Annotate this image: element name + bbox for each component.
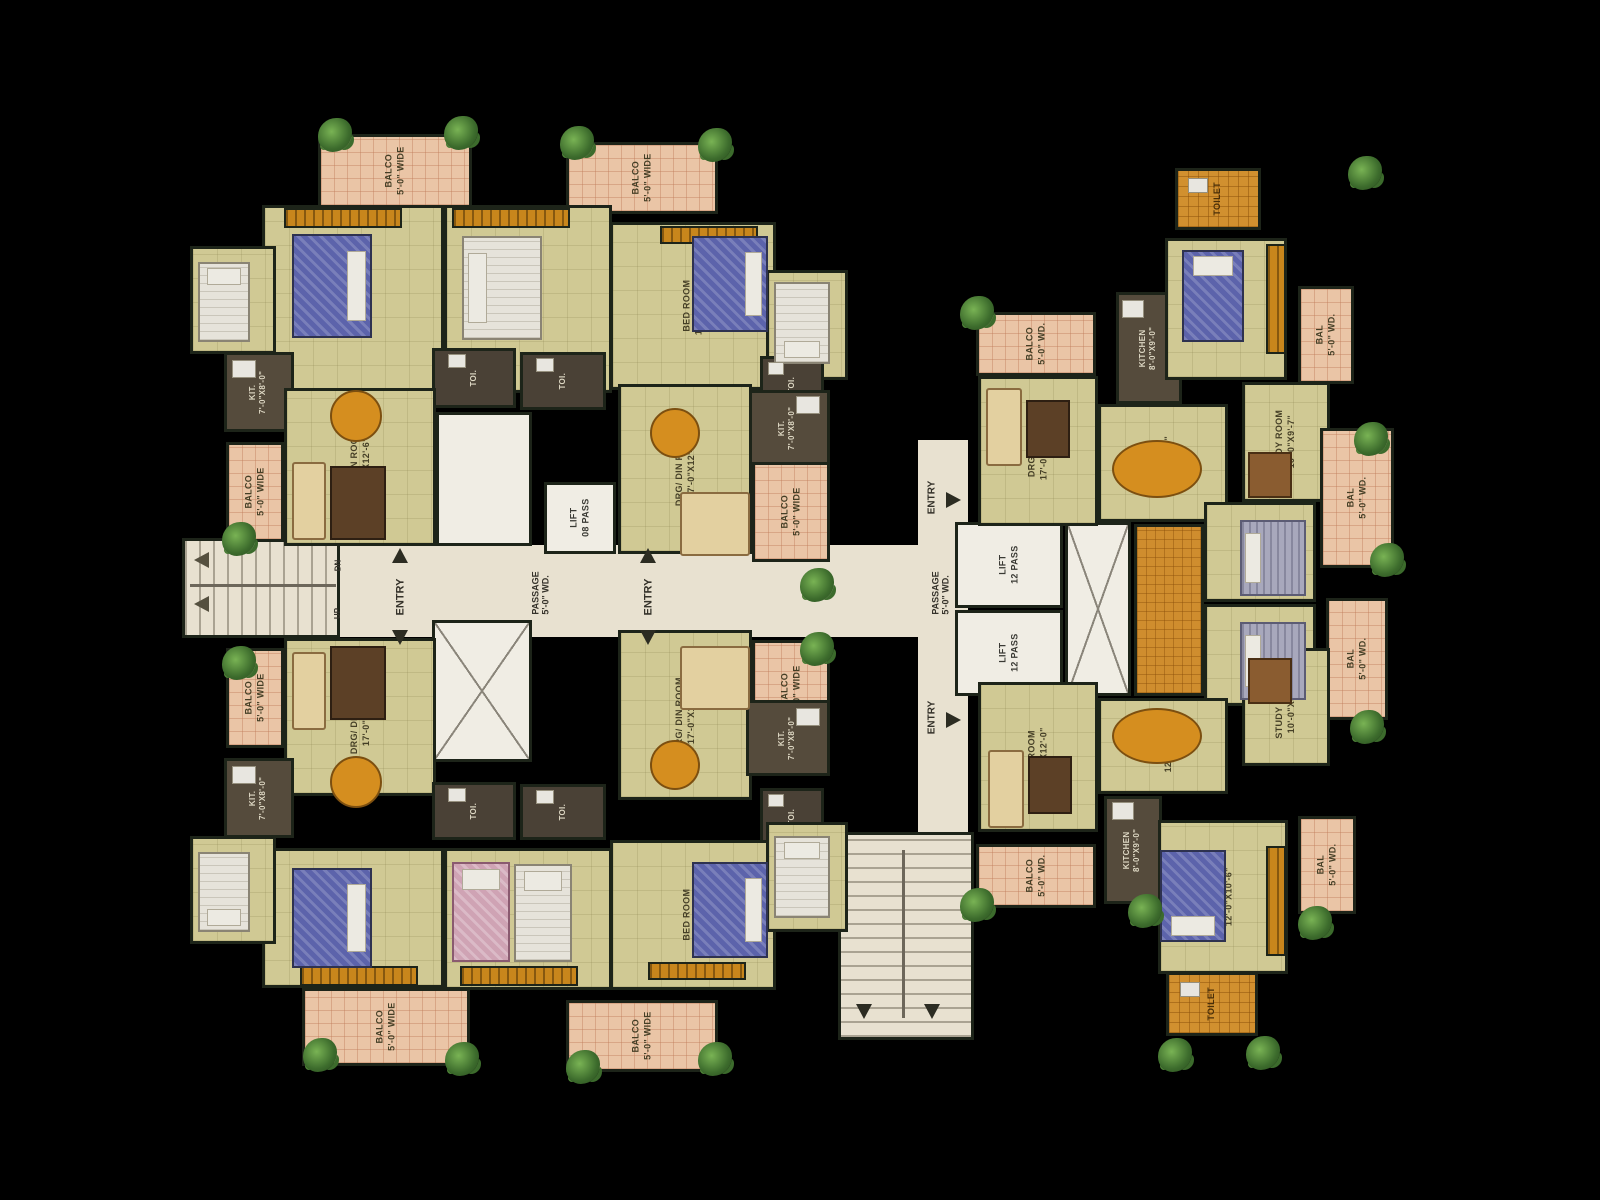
sofa-17 — [292, 652, 326, 730]
room-bal-b-bottomright: BAL 5'-0" WD. — [1298, 816, 1356, 914]
plant-icon — [1370, 543, 1404, 577]
tv-16 — [330, 466, 386, 540]
wardrobe-strip-0 — [284, 208, 402, 228]
bed-pillow — [1245, 533, 1261, 583]
bed-pillow — [1171, 916, 1214, 936]
wardrobe-strip-3 — [300, 966, 418, 986]
plant-icon — [698, 1042, 732, 1076]
fixture-43 — [768, 362, 784, 375]
room-label-toilet-center-4: TOI. — [523, 787, 603, 837]
bed-blue-5 — [292, 868, 372, 968]
bed-pink-6 — [452, 862, 510, 962]
room-lift-b1: LIFT 12 PASS — [955, 522, 1063, 608]
bed-white-7 — [514, 864, 572, 962]
room-label-bal-b-bottomright: BAL 5'-0" WD. — [1301, 819, 1353, 911]
floor-plan-canvas: LIFT 08 PASSLIFT 12 PASSLIFT 12 PASSBALC… — [0, 0, 1600, 1200]
wardrobe-strip-7 — [1266, 846, 1286, 956]
direction-arrow-up-icon — [392, 548, 408, 563]
wardrobe-strip-5 — [648, 962, 746, 980]
plant-icon — [1350, 710, 1384, 744]
stair-rail-1 — [902, 850, 905, 1018]
direction-arrow-right-icon — [946, 492, 961, 508]
room-balco-b-bottomleft: BALCO 5'-0" WD. — [976, 844, 1096, 908]
bed-blue-8 — [692, 862, 768, 958]
fixture-39 — [448, 354, 466, 368]
bed-blue-2 — [692, 236, 768, 332]
direction-arrow-right-icon — [946, 712, 961, 728]
room-label-balco-tr-top: BALCO 5'-0" WIDE — [569, 145, 715, 211]
desk-31 — [1248, 452, 1292, 498]
table-round-28 — [650, 740, 700, 790]
bed-white-10 — [774, 836, 830, 918]
bed-pillow — [1193, 256, 1234, 276]
fixture-41 — [448, 788, 466, 802]
room-shaft-core-b — [1065, 522, 1131, 696]
plant-icon — [1348, 156, 1382, 190]
room-shaft-core-a — [432, 620, 532, 762]
bed-pillow — [347, 251, 366, 321]
plant-icon — [566, 1050, 600, 1084]
fixture-46 — [1180, 982, 1200, 997]
plant-icon — [960, 888, 994, 922]
plant-icon — [1298, 906, 1332, 940]
bed-pillow — [468, 253, 487, 323]
table-oval-29 — [1112, 440, 1202, 498]
fixture-38 — [1112, 802, 1134, 820]
tv-22 — [1026, 400, 1070, 458]
room-hall-core-a — [436, 412, 532, 546]
bed-white-1 — [462, 236, 542, 340]
room-balco-b-topleft: BALCO 5'-0" WD. — [976, 312, 1096, 376]
plant-icon — [303, 1038, 337, 1072]
sofa-21 — [986, 388, 1022, 466]
room-lift-a: LIFT 08 PASS — [544, 482, 616, 554]
direction-arrow-down-icon — [856, 1004, 872, 1019]
fixture-42 — [536, 790, 554, 804]
room-balco-right-top: BALCO 5'-0" WIDE — [752, 462, 830, 562]
fixture-34 — [232, 766, 256, 784]
table-round-25 — [330, 390, 382, 442]
room-toilet-center-1: TOI. — [432, 348, 516, 408]
wardrobe-strip-1 — [452, 208, 570, 228]
room-toilet-center-2: TOI. — [520, 352, 606, 410]
room-label-lift-a: LIFT 08 PASS — [547, 485, 613, 551]
table-round-27 — [330, 756, 382, 808]
plant-icon — [1128, 894, 1162, 928]
sofa-15 — [292, 462, 326, 540]
room-label-toilet-center-3: TOI. — [435, 785, 513, 837]
bed-pillow — [784, 842, 820, 860]
room-label-balco-b-bottomleft: BALCO 5'-0" WD. — [979, 847, 1093, 905]
room-label-balco-right-top: BALCO 5'-0" WIDE — [755, 465, 827, 559]
direction-arrow-left-icon — [194, 596, 209, 612]
bed-pillow — [745, 252, 763, 316]
wardrobe-strip-6 — [1266, 244, 1286, 354]
room-label-lift-b1: LIFT 12 PASS — [958, 525, 1060, 605]
plant-icon — [1246, 1036, 1280, 1070]
room-label-toilet-center-1: TOI. — [435, 351, 513, 405]
desk-32 — [1248, 658, 1292, 704]
tv-24 — [1028, 756, 1072, 814]
sofa-19 — [680, 492, 750, 556]
fixture-45 — [1188, 178, 1208, 193]
sofa-20 — [680, 646, 750, 710]
table-round-26 — [650, 408, 700, 458]
plant-icon — [445, 1042, 479, 1076]
room-label-lift-b2: LIFT 12 PASS — [958, 613, 1060, 693]
fixture-44 — [768, 794, 784, 807]
room-label-toilet-center-2: TOI. — [523, 355, 603, 407]
bed-pillow — [745, 878, 763, 942]
room-toilet-center-3: TOI. — [432, 782, 516, 840]
room-bal-b-right-2: BAL 5'-0" WD. — [1326, 598, 1388, 720]
fixture-36 — [796, 708, 820, 726]
direction-arrow-down-icon — [392, 630, 408, 645]
wardrobe-strip-4 — [460, 966, 578, 986]
table-oval-30 — [1112, 708, 1202, 764]
direction-arrow-down-icon — [924, 1004, 940, 1019]
bed-pillow — [784, 341, 820, 359]
room-label-balco-b-topleft: BALCO 5'-0" WD. — [979, 315, 1093, 373]
fixture-40 — [536, 358, 554, 372]
bed-white-3 — [198, 262, 250, 342]
room-label-bal-b-right-2: BAL 5'-0" WD. — [1329, 601, 1385, 717]
room-dress-b-mid — [1134, 524, 1204, 696]
fixture-35 — [796, 396, 820, 414]
bed-white-9 — [198, 852, 250, 932]
bed-blue-0 — [292, 234, 372, 338]
direction-arrow-up-icon — [640, 548, 656, 563]
plant-icon — [444, 116, 478, 150]
tv-18 — [330, 646, 386, 720]
bed-pillow — [524, 871, 562, 892]
bed-white-4 — [774, 282, 830, 364]
room-bal-b-topright: BAL 5'-0" WD. — [1298, 286, 1354, 384]
bed-grey-12 — [1240, 520, 1306, 596]
bed-blue-14 — [1160, 850, 1226, 942]
fixture-37 — [1122, 300, 1144, 318]
fixture-33 — [232, 360, 256, 378]
bed-pillow — [207, 268, 241, 285]
plant-icon — [1158, 1038, 1192, 1072]
sofa-23 — [988, 750, 1024, 828]
bed-pillow — [462, 869, 500, 890]
direction-arrow-left-icon — [194, 552, 209, 568]
stair-rail-0 — [190, 584, 336, 587]
plant-icon — [698, 128, 732, 162]
bed-pillow — [347, 884, 366, 951]
room-label-bal-b-topright: BAL 5'-0" WD. — [1301, 289, 1351, 381]
bed-blue-11 — [1182, 250, 1244, 342]
direction-arrow-down-icon — [640, 630, 656, 645]
bed-pillow — [207, 909, 241, 926]
room-toilet-center-4: TOI. — [520, 784, 606, 840]
